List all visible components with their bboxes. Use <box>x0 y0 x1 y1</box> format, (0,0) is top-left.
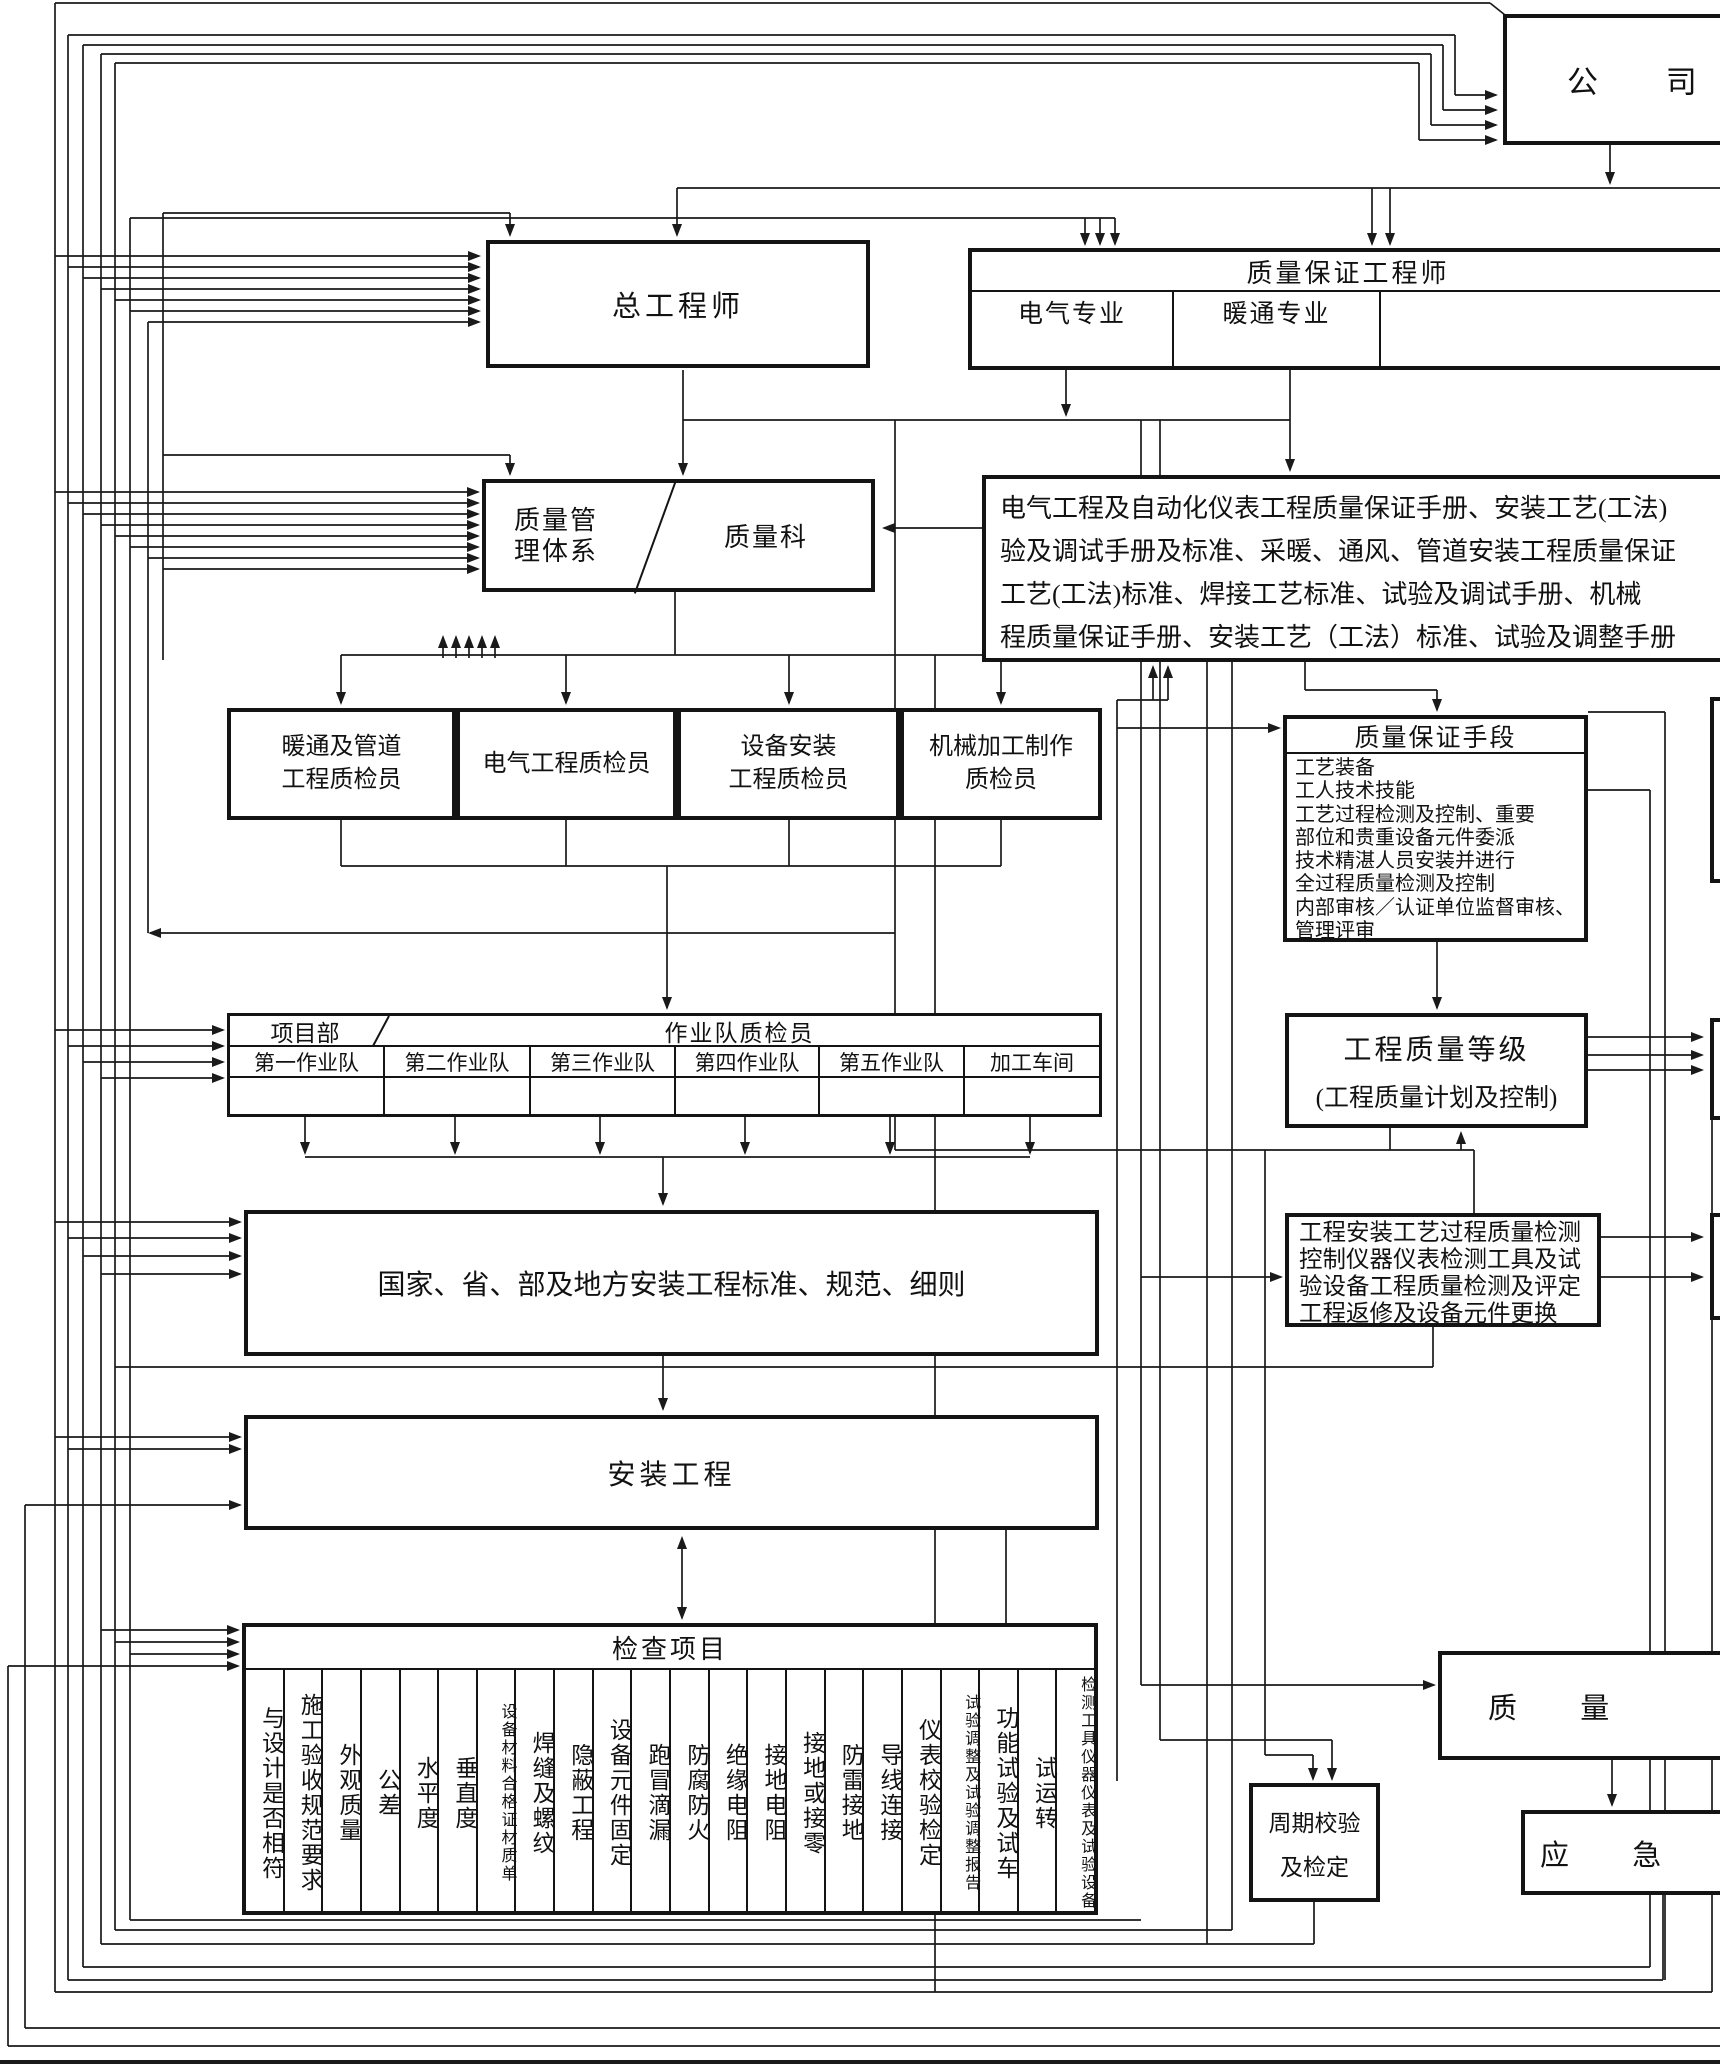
manuals-line: 工艺(工法)标准、焊接工艺标准、试验及调试手册、机械 <box>1000 573 1720 616</box>
process-inspection-line: 控制仪器仪表检测工具及试 <box>1299 1247 1597 1274</box>
org-quality-diagram: 公 司 总工程师 质量保证工程师 电气专业暖通专业 质量管 理体系 质量科 电气… <box>0 0 1720 2070</box>
quality-record-box: 质 量 <box>1438 1651 1720 1760</box>
check-item-column: 跑冒滴漏 <box>632 1670 671 1911</box>
check-item-column: 防腐防火 <box>671 1670 710 1911</box>
check-item-column: 导线连接 <box>864 1670 903 1911</box>
manuals-line: 程质量保证手册、安装工艺（工法）标准、试验及调整手册 <box>1000 616 1720 659</box>
periodic-check-line1: 周期校验 <box>1269 1804 1361 1838</box>
team-empty-cell <box>965 1078 1099 1114</box>
manuals-line: 电气工程及自动化仪表工程质量保证手册、安装工艺(工法) <box>1000 487 1720 530</box>
qms-box: 质量管 理体系 质量科 <box>482 479 875 592</box>
quality-grade-line1: 工程质量等级 <box>1343 1028 1529 1068</box>
inspector-label: 工程质检员 <box>282 764 402 797</box>
process-inspection-box: 工程安装工艺过程质量检测控制仪器仪表检测工具及试验设备工程质量检测及评定工程返修… <box>1285 1213 1601 1327</box>
qa-means-item: 工艺装备 <box>1295 757 1584 780</box>
qa-means-item: 全过程质量检测及控制 <box>1295 873 1584 896</box>
chief-engineer-label: 总工程师 <box>612 283 744 325</box>
standards-label: 国家、省、部及地方安装工程标准、规范、细则 <box>377 1263 965 1303</box>
check-item-column: 设备元件固定 <box>594 1670 633 1911</box>
inspector-label: 设备安装 <box>741 731 837 764</box>
emergency-label: 应 急 <box>1510 1832 1720 1874</box>
check-item-column: 试运转 <box>1019 1670 1058 1911</box>
team-cell: 第四作业队 <box>676 1047 820 1076</box>
clipped-box-right-3 <box>1710 1213 1720 1320</box>
installation-box: 安装工程 <box>244 1415 1099 1530</box>
check-item-column: 设备材料合格证材质单 <box>478 1670 517 1911</box>
inspector-box: 机械加工制作质检员 <box>900 708 1102 820</box>
check-item-column: 焊缝及螺纹 <box>516 1670 555 1911</box>
check-item-column: 隐蔽工程 <box>555 1670 594 1911</box>
process-inspection-line: 工程安装工艺过程质量检测 <box>1299 1220 1597 1247</box>
qa-specialty-cell: 电气专业 <box>972 292 1174 332</box>
qa-means-item: 内部审核／认证单位监督审核、 <box>1295 897 1584 920</box>
check-item-column: 接地或接零 <box>787 1670 826 1911</box>
qa-engineer-title: 质量保证工程师 <box>1246 253 1449 290</box>
check-item-column: 水平度 <box>401 1670 440 1911</box>
team-empty-cell <box>676 1078 820 1114</box>
team-empty-cell <box>385 1078 531 1114</box>
company-label: 公 司 <box>1447 57 1720 102</box>
qa-specialty-cell <box>1381 292 1720 332</box>
team-inspectors-title: 作业队质检员 <box>380 1014 1099 1048</box>
inspector-label: 工程质检员 <box>729 764 849 797</box>
clipped-box-right-2 <box>1710 1018 1720 1120</box>
process-inspection-line: 验设备工程质量检测及评定 <box>1299 1274 1597 1301</box>
check-item-column: 与设计是否相符 <box>246 1670 285 1911</box>
check-item-column: 施工验收规范要求 <box>285 1670 324 1911</box>
team-empty-cell <box>531 1078 676 1114</box>
team-cell: 第一作业队 <box>230 1047 385 1076</box>
inspector-box: 暖通及管道工程质检员 <box>227 708 456 820</box>
qa-empty-cell <box>972 332 1174 366</box>
emergency-box: 应 急 <box>1521 1810 1720 1895</box>
check-item-column: 绝缘电阻 <box>710 1670 749 1911</box>
inspector-label: 电气工程质检员 <box>483 748 651 781</box>
quality-section-label: 质量科 <box>724 483 808 588</box>
process-inspection-line: 工程返修及设备元件更换 <box>1299 1301 1597 1328</box>
team-label-row: 第一作业队第二作业队第三作业队第四作业队第五作业队加工车间 <box>230 1047 1099 1078</box>
qa-means-box: 质量保证手段 工艺装备工人技术技能工艺过程检测及控制、重要部位和贵重设备元件委派… <box>1283 715 1588 942</box>
quality-record-label: 质 量 <box>1396 1685 1720 1727</box>
qa-means-item: 工人技术技能 <box>1295 780 1584 803</box>
check-item-column: 外观质量 <box>323 1670 362 1911</box>
inspector-box: 设备安装工程质检员 <box>677 708 900 820</box>
check-items-table: 检查项目 与设计是否相符施工验收规范要求外观质量公差水平度垂直度设备材料合格证材… <box>242 1623 1098 1915</box>
clipped-box-right-1 <box>1710 697 1720 883</box>
inspector-label: 质检员 <box>965 764 1037 797</box>
qa-engineer-header: 质量保证工程师 <box>972 252 1720 292</box>
qa-means-list: 工艺装备工人技术技能工艺过程检测及控制、重要部位和贵重设备元件委派技术精湛人员安… <box>1287 754 1584 943</box>
team-empty-cell <box>230 1078 385 1114</box>
qa-means-item: 部位和贵重设备元件委派 <box>1295 827 1584 850</box>
qms-label: 质量管 理体系 <box>514 483 598 588</box>
inspector-box: 电气工程质检员 <box>456 708 677 820</box>
check-item-column: 公差 <box>362 1670 401 1911</box>
company-box: 公 司 <box>1503 14 1720 145</box>
qa-specialty-row: 电气专业暖通专业 <box>972 292 1720 332</box>
qa-engineer-table: 质量保证工程师 电气专业暖通专业 <box>968 248 1720 370</box>
qa-specialty-cell: 暖通专业 <box>1174 292 1381 332</box>
qa-means-item: 管理评审 <box>1295 920 1584 943</box>
check-item-column: 垂直度 <box>439 1670 478 1911</box>
check-item-column: 防雷接地 <box>826 1670 865 1911</box>
project-dept-label: 项目部 <box>230 1014 380 1048</box>
qa-empty-cell <box>1381 332 1720 366</box>
project-dept-table: 项目部 作业队质检员 第一作业队第二作业队第三作业队第四作业队第五作业队加工车间 <box>227 1013 1102 1117</box>
check-item-column: 检测工具仪器仪表及试验设备 <box>1057 1670 1094 1911</box>
quality-grade-box: 工程质量等级 (工程质量计划及控制) <box>1285 1013 1588 1128</box>
team-cell: 第三作业队 <box>531 1047 676 1076</box>
team-cell: 第二作业队 <box>385 1047 531 1076</box>
team-cell: 第五作业队 <box>820 1047 965 1076</box>
qms-divider <box>634 482 676 594</box>
check-item-column: 试验调整及试验调整报告 <box>942 1670 981 1911</box>
inspector-label: 暖通及管道 <box>282 731 402 764</box>
qa-empty-row <box>972 332 1720 366</box>
check-item-column: 接地电阻 <box>748 1670 787 1911</box>
quality-grade-line2: (工程质量计划及控制) <box>1316 1078 1558 1114</box>
chief-engineer-box: 总工程师 <box>486 240 870 368</box>
manuals-line: 验及调试手册及标准、采暖、通风、管道安装工程质量保证 <box>1000 530 1720 573</box>
inspector-label: 机械加工制作 <box>929 731 1073 764</box>
periodic-check-line2: 及检定 <box>1280 1848 1349 1882</box>
team-empty-cell <box>820 1078 965 1114</box>
team-empty-row <box>230 1078 1099 1114</box>
check-item-column: 仪表校验检定 <box>903 1670 942 1911</box>
standards-box: 国家、省、部及地方安装工程标准、规范、细则 <box>244 1210 1099 1356</box>
check-items-title: 检查项目 <box>246 1627 1094 1670</box>
installation-label: 安装工程 <box>607 1453 735 1493</box>
qa-means-item: 技术精湛人员安装并进行 <box>1295 850 1584 873</box>
team-cell: 加工车间 <box>965 1047 1099 1076</box>
qa-means-item: 工艺过程检测及控制、重要 <box>1295 804 1584 827</box>
qa-means-title: 质量保证手段 <box>1287 719 1584 754</box>
qa-manuals-box: 电气工程及自动化仪表工程质量保证手册、安装工艺(工法)验及调试手册及标准、采暖、… <box>982 475 1720 662</box>
periodic-check-box: 周期校验 及检定 <box>1249 1783 1380 1902</box>
check-items-columns: 与设计是否相符施工验收规范要求外观质量公差水平度垂直度设备材料合格证材质单焊缝及… <box>246 1670 1094 1911</box>
qa-empty-cell <box>1174 332 1381 366</box>
check-item-column: 功能试验及试车 <box>980 1670 1019 1911</box>
